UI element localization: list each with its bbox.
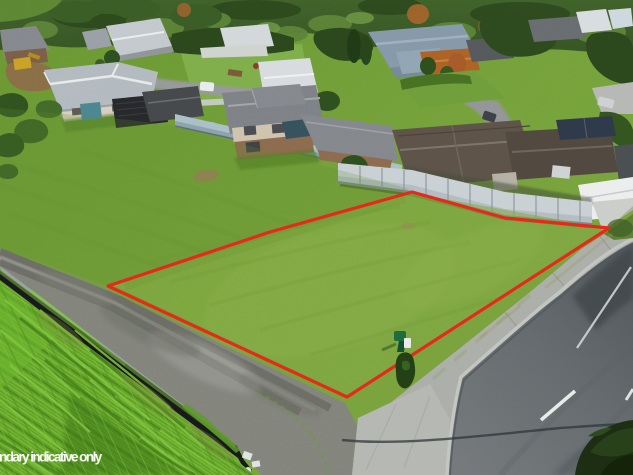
svg-text:ndary indicative only: ndary indicative only (0, 450, 103, 465)
